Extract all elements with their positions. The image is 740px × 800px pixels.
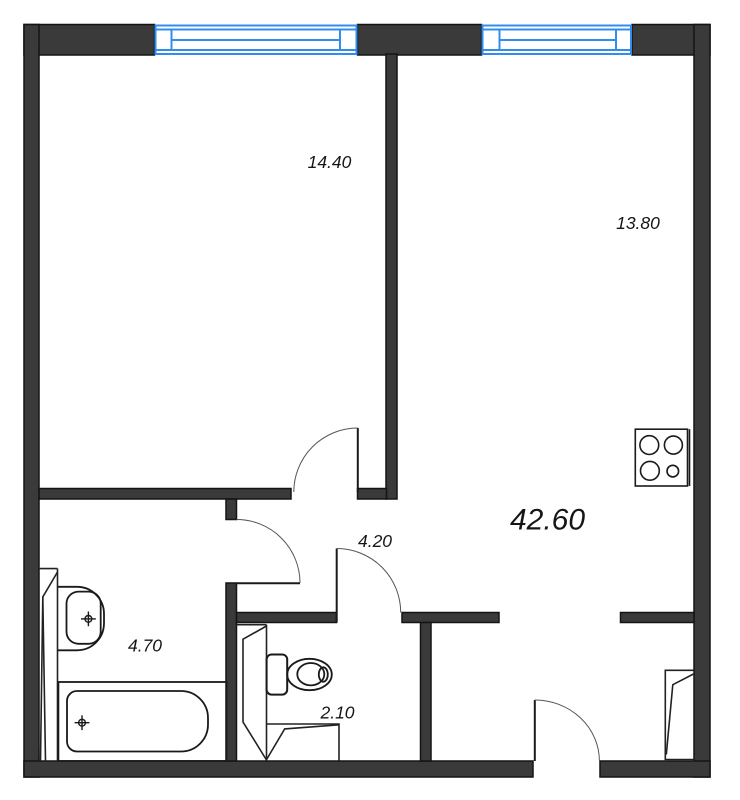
svg-text:14.40: 14.40 — [308, 152, 352, 172]
svg-text:2.10: 2.10 — [319, 703, 354, 723]
svg-text:4.70: 4.70 — [128, 636, 162, 656]
svg-text:42.60: 42.60 — [510, 504, 585, 537]
svg-text:13.80: 13.80 — [616, 213, 660, 233]
svg-text:4.20: 4.20 — [358, 531, 392, 551]
